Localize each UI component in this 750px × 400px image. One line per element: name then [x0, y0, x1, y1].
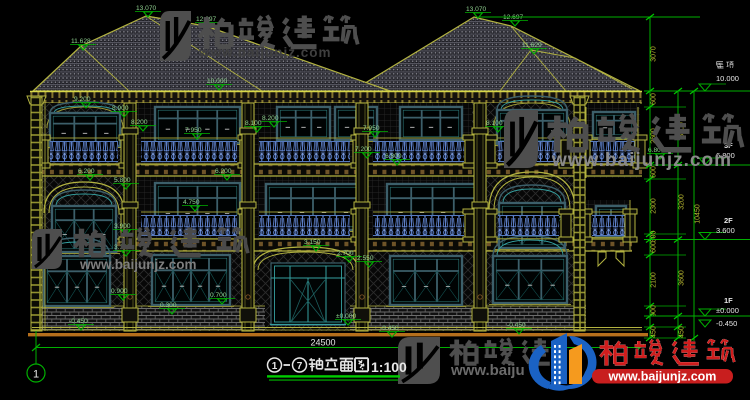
svg-text:3200: 3200 [679, 194, 686, 210]
svg-text:6.800: 6.800 [385, 153, 402, 160]
svg-text:13.070: 13.070 [466, 6, 487, 13]
svg-text:10450: 10450 [695, 204, 702, 224]
svg-text:7.950: 7.950 [185, 127, 202, 134]
svg-text:-0.450: -0.450 [507, 322, 526, 329]
svg-text:300: 300 [651, 231, 658, 243]
svg-text:8.100: 8.100 [245, 120, 262, 127]
svg-text:0.700: 0.700 [210, 292, 227, 299]
svg-text:5.800: 5.800 [114, 177, 131, 184]
svg-text:www.baijunjz.com: www.baijunjz.com [551, 150, 732, 171]
svg-text:www.baijunjz.com: www.baijunjz.com [608, 370, 717, 384]
svg-text:3600: 3600 [679, 270, 686, 286]
svg-text:24500: 24500 [310, 338, 335, 348]
svg-text:2.550: 2.550 [357, 255, 374, 262]
svg-text:10.000: 10.000 [207, 78, 228, 85]
svg-text:2100: 2100 [651, 272, 658, 288]
svg-text:7.950: 7.950 [363, 125, 380, 132]
svg-text:10.000: 10.000 [716, 74, 739, 83]
svg-text:600: 600 [651, 241, 658, 253]
svg-text:8.200: 8.200 [262, 115, 279, 122]
svg-text:1:100: 1:100 [371, 359, 407, 375]
svg-text:1: 1 [272, 361, 278, 372]
svg-text:-0.450: -0.450 [380, 325, 399, 332]
svg-text:±0.000: ±0.000 [716, 306, 739, 315]
svg-text:3.600: 3.600 [716, 226, 735, 235]
svg-text:8.200: 8.200 [131, 119, 148, 126]
svg-text:-0.450: -0.450 [716, 319, 737, 328]
svg-text:2.700: 2.700 [337, 250, 354, 257]
svg-text:3070: 3070 [651, 46, 658, 62]
svg-text:450: 450 [679, 326, 686, 338]
svg-text:3.150: 3.150 [304, 239, 321, 246]
svg-text:8.900: 8.900 [112, 105, 129, 112]
svg-text:±0.000: ±0.000 [336, 313, 356, 320]
svg-text:600: 600 [651, 93, 658, 105]
svg-text:7.200: 7.200 [355, 146, 372, 153]
svg-text:0.300: 0.300 [160, 302, 177, 309]
svg-text:6.200: 6.200 [215, 168, 232, 175]
svg-text:1: 1 [33, 369, 39, 381]
svg-text:www.baijunjz.com: www.baijunjz.com [198, 45, 332, 60]
svg-text:6.200: 6.200 [78, 168, 95, 175]
svg-text:3.900: 3.900 [114, 223, 131, 230]
svg-text:4.750: 4.750 [183, 199, 200, 206]
svg-text:www.baijunjz.com: www.baijunjz.com [79, 257, 197, 272]
svg-text:2300: 2300 [651, 198, 658, 214]
svg-text:11.629: 11.629 [522, 42, 542, 49]
svg-text:-0.450: -0.450 [69, 318, 88, 325]
svg-text:9.200: 9.200 [74, 96, 91, 103]
svg-text:900: 900 [651, 305, 658, 317]
svg-text:7: 7 [297, 361, 303, 372]
svg-text:11.628: 11.628 [71, 38, 91, 45]
svg-text:13.070: 13.070 [136, 5, 157, 12]
svg-text:1F: 1F [724, 296, 733, 305]
svg-text:0.900: 0.900 [111, 288, 128, 295]
svg-text:8.100: 8.100 [486, 120, 503, 127]
svg-text:12.697: 12.697 [503, 14, 524, 21]
svg-text:2F: 2F [724, 216, 733, 225]
svg-text:www.baiju: www.baiju [450, 362, 525, 379]
svg-text:450: 450 [651, 326, 658, 338]
